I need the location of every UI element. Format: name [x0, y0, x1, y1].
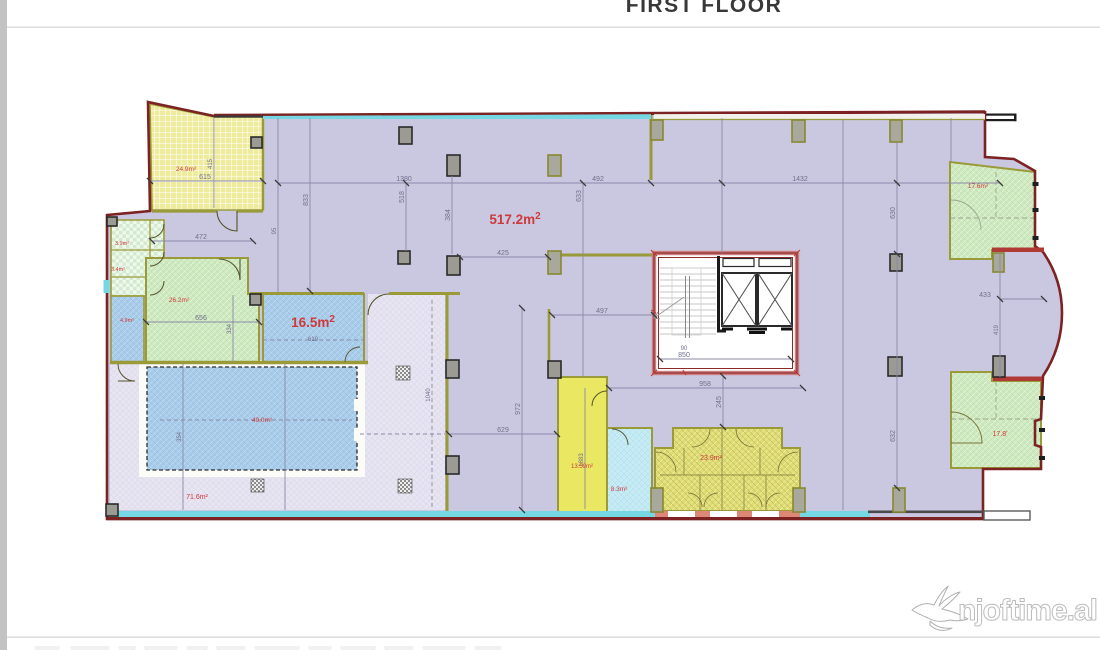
- svg-text:415: 415: [208, 158, 214, 169]
- svg-text:8.3m²: 8.3m²: [611, 486, 628, 493]
- svg-text:49.0m²: 49.0m²: [252, 417, 273, 424]
- svg-text:958: 958: [699, 381, 711, 388]
- svg-text:334: 334: [227, 323, 233, 334]
- svg-text:633: 633: [576, 190, 583, 202]
- svg-text:629: 629: [497, 427, 509, 434]
- svg-text:3.9m²: 3.9m²: [115, 241, 129, 247]
- svg-text:17.8': 17.8': [993, 431, 1008, 438]
- svg-text:71.6m²: 71.6m²: [186, 494, 208, 501]
- svg-text:1432: 1432: [792, 176, 808, 183]
- svg-text:17.6m²: 17.6m²: [968, 183, 989, 190]
- svg-text:23.9m²: 23.9m²: [700, 455, 722, 462]
- svg-text:492: 492: [592, 176, 604, 183]
- svg-text:518: 518: [399, 191, 406, 203]
- svg-text:433: 433: [979, 292, 991, 299]
- svg-text:425: 425: [497, 250, 509, 257]
- svg-text:FIRST FLOOR: FIRST FLOOR: [626, 0, 783, 17]
- svg-text:656: 656: [195, 315, 207, 322]
- svg-text:619: 619: [308, 337, 319, 343]
- svg-text:3.4m²: 3.4m²: [111, 267, 125, 273]
- svg-text:1380: 1380: [396, 176, 412, 183]
- svg-text:419: 419: [994, 324, 1000, 335]
- svg-text:384: 384: [445, 209, 452, 221]
- svg-text:615: 615: [199, 174, 211, 181]
- svg-text:354: 354: [177, 431, 183, 442]
- svg-text:497: 497: [596, 308, 608, 315]
- svg-text:630: 630: [890, 207, 897, 219]
- svg-text:90: 90: [681, 346, 688, 352]
- svg-text:4.9m²: 4.9m²: [120, 318, 134, 324]
- svg-text:245: 245: [716, 396, 723, 408]
- svg-text:16.5m2: 16.5m2: [291, 314, 335, 330]
- svg-text:972: 972: [515, 403, 522, 415]
- svg-text:833: 833: [303, 194, 310, 206]
- svg-text:95: 95: [272, 227, 278, 234]
- svg-text:632: 632: [890, 430, 897, 442]
- svg-text:26.2m²: 26.2m²: [169, 297, 190, 304]
- svg-text:24.9m²: 24.9m²: [176, 166, 197, 173]
- svg-text:517.2m2: 517.2m2: [489, 211, 541, 227]
- svg-text:1040: 1040: [426, 388, 432, 402]
- svg-text:850: 850: [678, 352, 690, 359]
- svg-text:13.59m²: 13.59m²: [571, 464, 593, 470]
- svg-text:njoftime.al: njoftime.al: [958, 594, 1097, 627]
- svg-text:472: 472: [195, 234, 207, 241]
